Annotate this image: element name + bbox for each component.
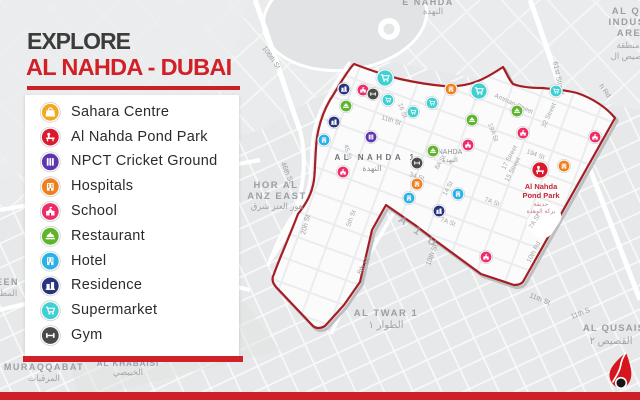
svg-text:القصيص ال: القصيص ال (611, 51, 640, 62)
svg-text:NAHDA: NAHDA (438, 149, 463, 156)
svg-text:القصيص ٢: القصيص ٢ (590, 336, 633, 347)
svg-text:Pond Park: Pond Park (522, 191, 560, 200)
svg-text:AL TWAR 1: AL TWAR 1 (354, 308, 419, 319)
svg-text:AL Q: AL Q (612, 6, 640, 17)
svg-text:ARE: ARE (617, 28, 640, 39)
svg-text:منطقة: منطقة (617, 40, 640, 50)
svg-text:الطوار ١: الطوار ١ (369, 320, 404, 331)
svg-text:AL NAHDA 1: AL NAHDA 1 (334, 153, 417, 162)
svg-text:المطينة: المطينة (0, 288, 17, 298)
svg-text:النهدة: النهدة (362, 164, 381, 173)
svg-text:النهدة: النهدة (442, 156, 458, 164)
svg-text:AL QUSAIS: AL QUSAIS (583, 323, 640, 334)
svg-text:النهدة: النهدة (423, 6, 443, 17)
svg-text:الخبيصي: الخبيصي (113, 367, 143, 377)
svg-text:INDUS: INDUS (608, 17, 640, 28)
svg-text:بركة الوهدة: بركة الوهدة (527, 208, 556, 215)
svg-text:Al Nahda: Al Nahda (525, 182, 558, 191)
svg-text:المرقبات: المرقبات (28, 373, 60, 384)
svg-text:MURAQQABAT: MURAQQABAT (4, 362, 84, 372)
svg-text:هور العنز شرق: هور العنز شرق (251, 201, 304, 212)
svg-text:حديقة: حديقة (534, 202, 549, 208)
svg-text:UTEEN: UTEEN (0, 277, 19, 287)
